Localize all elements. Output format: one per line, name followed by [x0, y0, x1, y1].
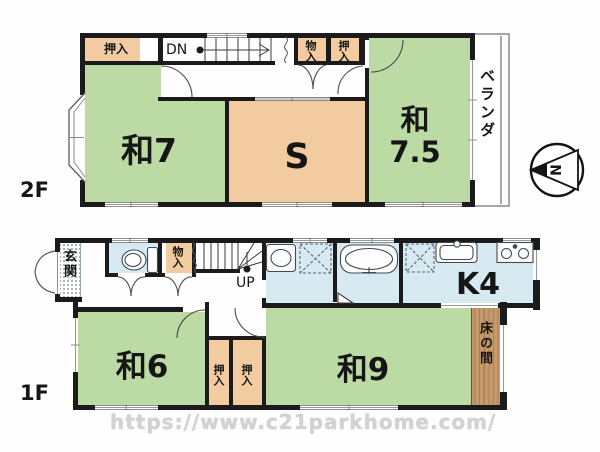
stairs-2f — [197, 37, 288, 63]
label-kitchen-k4: K4 — [448, 270, 508, 300]
label-oshiire-2f-left: 押入 — [94, 43, 138, 55]
hall-notch-2f — [161, 64, 225, 97]
label-washitsu75-line2: 7.5 — [389, 138, 441, 167]
label-service-room: S — [275, 140, 319, 175]
label-stairs-up: UP — [236, 276, 255, 290]
label-veranda: ベランダ — [479, 68, 494, 140]
label-washitsu7: 和7 — [103, 134, 195, 167]
label-genkan: 玄関 — [62, 249, 75, 279]
room-bathroom-1f — [337, 243, 399, 303]
stairs-1f — [192, 243, 262, 273]
room-toilet-1f — [109, 243, 158, 273]
label-monoire-2f: 物入 — [305, 40, 316, 62]
label-oshiire-1f-2: 押入 — [241, 364, 252, 386]
label-oshiire-1f-1: 押入 — [213, 364, 224, 386]
label-monoire-1f: 物入 — [172, 246, 183, 268]
label-washitsu75-line1: 和 — [389, 106, 441, 135]
entry-door-arc — [35, 251, 55, 293]
floor-plan: 和7 S 和 7.5 ベランダ 押入 物入 押入 DN 2F 玄関 物入 UP … — [0, 0, 600, 452]
compass-north-letter: N — [550, 164, 564, 176]
label-oshiire-2f-right: 押入 — [338, 40, 349, 62]
label-washitsu9: 和9 — [317, 355, 409, 386]
label-tokonoma: 床の間 — [478, 321, 491, 366]
room-washroom-1f — [266, 243, 333, 303]
label-washitsu6: 和6 — [98, 352, 186, 383]
label-floor-2f: 2F — [20, 180, 49, 201]
label-floor-1f: 1F — [20, 383, 49, 404]
watermark-url: https://www.c21parkhome.com/ — [110, 410, 490, 434]
label-stairs-dn: DN — [166, 43, 187, 57]
bay-window — [69, 93, 85, 182]
